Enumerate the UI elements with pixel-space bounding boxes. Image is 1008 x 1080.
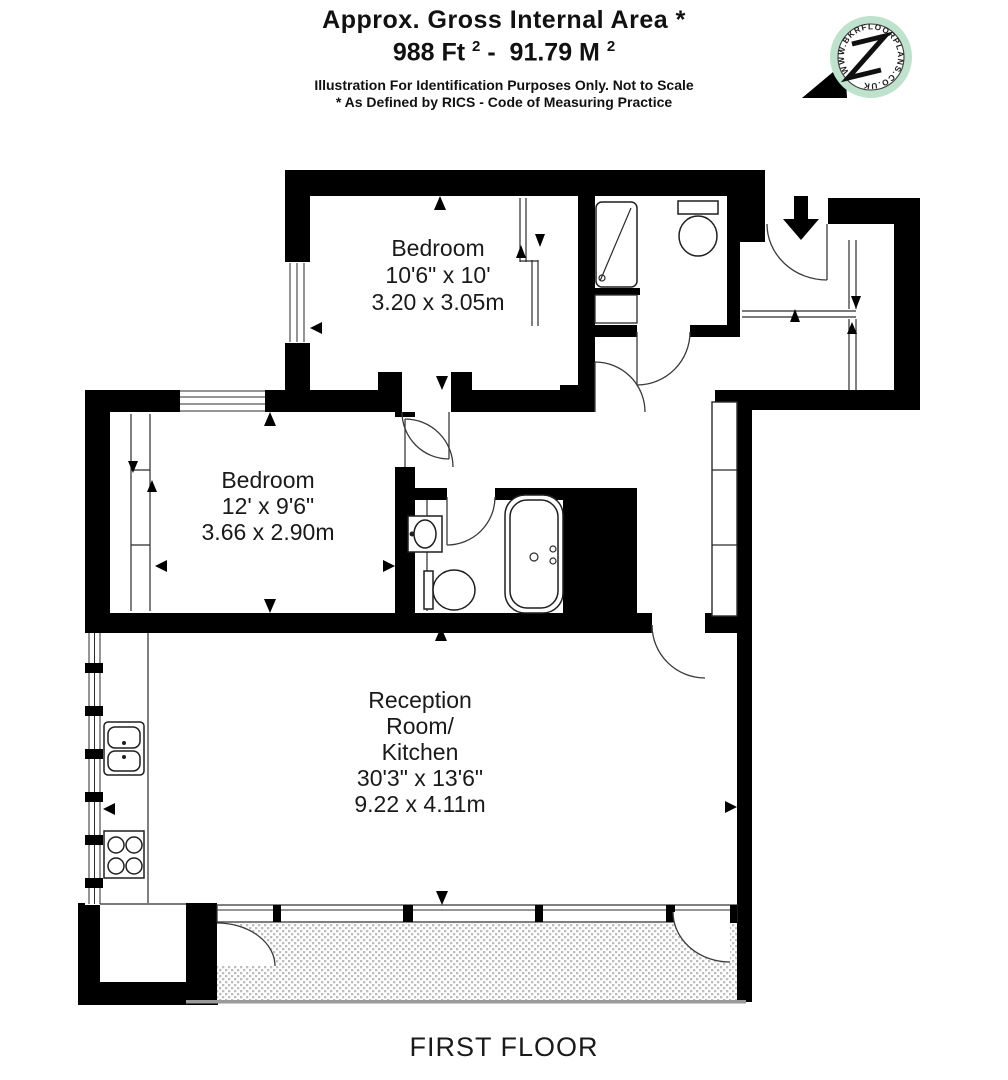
bedroom2-wardrobe	[131, 414, 150, 611]
hall-cupboard	[712, 402, 737, 616]
area-imperial: 988 Ft	[393, 38, 472, 66]
bedroom1-imperial: 10'6" x 10'	[385, 262, 490, 288]
bedroom2-label: Bedroom 12' x 9'6" 3.66 x 2.90m	[202, 467, 335, 545]
shower-closet	[595, 295, 637, 323]
bedroom1-metric: 3.20 x 3.05m	[372, 289, 505, 315]
shower-room-door	[637, 332, 690, 385]
sink-icon	[104, 722, 144, 775]
disclaimers: Illustration For Identification Purposes…	[0, 77, 1008, 112]
floor-label: FIRST FLOOR	[0, 1032, 1008, 1063]
shower-tray-icon	[596, 202, 637, 287]
page-title: Approx. Gross Internal Area *	[0, 6, 1008, 35]
arrow-right-icon	[383, 560, 395, 572]
arrow-up-icon	[434, 196, 446, 210]
gross-area-line: 988 Ft 2 - 91.79 M 2	[0, 38, 1008, 67]
arrow-up-icon	[516, 245, 526, 258]
arrow-down-icon	[264, 599, 276, 613]
entrance-arrow-icon	[783, 196, 819, 240]
bedroom1-label: Bedroom 10'6" x 10' 3.20 x 3.05m	[372, 235, 505, 315]
arrow-up-icon	[264, 412, 276, 426]
reception-name1: Reception	[368, 687, 472, 713]
arrow-left-icon	[310, 322, 322, 334]
bedroom2-metric: 3.66 x 2.90m	[202, 519, 335, 545]
area-metric-sup: 2	[607, 38, 615, 55]
reception-metric: 9.22 x 4.11m	[354, 791, 485, 817]
reception-window-band	[217, 905, 737, 923]
bedroom2-name: Bedroom	[221, 467, 314, 493]
arrow-left-icon	[155, 560, 167, 572]
toilet-icon	[678, 201, 718, 256]
balcony	[186, 912, 746, 1004]
header: Approx. Gross Internal Area * 988 Ft 2 -…	[0, 6, 1008, 112]
reception-name2: Room/	[386, 713, 454, 739]
reception-label: Reception Room/ Kitchen 30'3" x 13'6" 9.…	[354, 687, 485, 817]
reception-name3: Kitchen	[382, 739, 459, 765]
bathtub-icon	[505, 495, 563, 613]
bedroom1-name: Bedroom	[391, 235, 484, 261]
toilet2-icon	[424, 570, 475, 610]
basin-icon	[408, 516, 442, 552]
arrow-left-icon	[103, 803, 115, 815]
arrow-down-icon	[436, 891, 448, 905]
hob-icon	[104, 831, 144, 878]
reception-door	[652, 625, 705, 678]
floorplan-drawing: WWW.BKRFLOORPLANS.CO.UK	[0, 0, 1008, 1080]
balcony-hatch	[217, 923, 737, 1000]
bathroom-door	[447, 497, 495, 545]
arrow-down-icon	[128, 461, 138, 473]
bedroom2-door	[405, 419, 453, 467]
arrow-right-icon	[725, 801, 737, 813]
area-metric: 91.79 M	[510, 38, 607, 66]
bedroom1-wardrobe	[520, 198, 538, 326]
service-void	[563, 488, 637, 613]
reception-imperial: 30'3" x 13'6"	[357, 765, 483, 791]
balcony-edge	[186, 1000, 746, 1004]
arrow-down-icon	[535, 234, 545, 247]
arrow-down-icon	[851, 296, 861, 309]
disclaimer-line2: * As Defined by RICS - Code of Measuring…	[0, 94, 1008, 112]
bedroom2-window	[180, 390, 265, 412]
arrow-down-icon	[436, 376, 448, 390]
room-labels: Bedroom 10'6" x 10' 3.20 x 3.05m Bedroom…	[202, 235, 505, 817]
area-separator: -	[480, 38, 509, 66]
arrow-up-icon	[147, 480, 157, 492]
disclaimer-line1: Illustration For Identification Purposes…	[0, 77, 1008, 95]
bedroom2-imperial: 12' x 9'6"	[222, 493, 314, 519]
floorplan-page: Approx. Gross Internal Area * 988 Ft 2 -…	[0, 0, 1008, 1080]
